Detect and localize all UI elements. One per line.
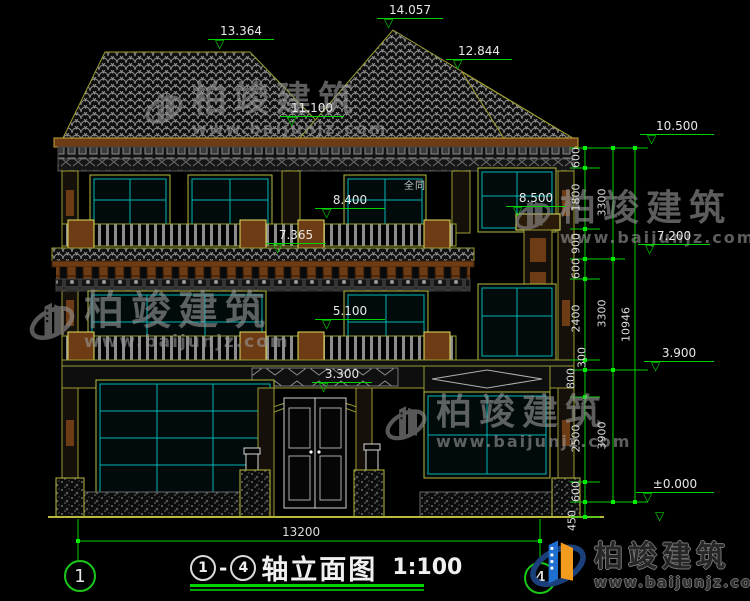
cad-elevation-drawing: 14.057 ▽ 13.364 ▽ 12.844 ▽ 11.100 ▽ 8.40… xyxy=(0,0,750,601)
dim-right-inner-2400: 2400 xyxy=(570,297,583,341)
elevation-triangle-icon: ▽ xyxy=(655,512,664,521)
elevation-mark-5100: 5.100 ▽ xyxy=(315,304,385,329)
dim-right-inner-2500: 2500 xyxy=(570,417,583,461)
dim-right-mid-3300a: 3300 xyxy=(596,181,609,225)
title-dash: - xyxy=(219,556,227,580)
elevation-triangle-icon: ▽ xyxy=(513,207,566,216)
elevation-mark-zero: ±0.000 ▽ xyxy=(636,477,714,502)
title-name: 轴立面图 xyxy=(261,548,377,587)
eave-cornice xyxy=(54,138,578,171)
brand-logo-url: www.baijunjz.com xyxy=(594,575,750,591)
brand-logo-icon xyxy=(528,532,588,592)
title-axis-end-circle: 4 xyxy=(230,555,256,581)
watermark-top: 柏竣建筑 www.baijunjz.com xyxy=(144,82,387,138)
axis-bubble-1: 1 xyxy=(64,560,96,592)
dim-right-inner-600: 600 xyxy=(570,136,583,180)
elevation-triangle-icon: ▽ xyxy=(645,245,710,254)
title-underline-thick xyxy=(190,584,424,587)
elevation-triangle-icon: ▽ xyxy=(322,209,385,218)
dim-right-mid-3300b: 3300 xyxy=(596,292,609,336)
elevation-triangle-icon: ▽ xyxy=(384,19,443,28)
dim-right-inner-600b: 600 xyxy=(570,247,583,291)
elevation-mark-roof-left: 13.364 ▽ xyxy=(208,24,274,49)
elevation-mark-roof-peak: 14.057 ▽ xyxy=(377,3,443,28)
elevation-triangle-icon: ▽ xyxy=(287,117,344,126)
elevation-mark-10500: 10.500 ▽ xyxy=(640,119,714,144)
elevation-triangle-icon: ▽ xyxy=(651,362,714,371)
watermark-url: www.baijunjz.com xyxy=(84,332,290,352)
elevation-mark-7200: 7.200 ▽ xyxy=(638,229,710,254)
elevation-triangle-icon: ▽ xyxy=(322,320,385,329)
title-scale: 1:100 xyxy=(392,555,462,580)
brand-logo-name: 柏竣建筑 xyxy=(594,533,750,575)
elevation-triangle-icon: ▽ xyxy=(453,60,512,69)
title-axis-start-circle: 1 xyxy=(190,555,216,581)
watermark-brand: 柏竣建筑 xyxy=(560,190,750,228)
dim-right-mid-3900: 3900 xyxy=(596,414,609,458)
watermark-brand: 柏竣建筑 xyxy=(84,290,290,332)
watermark-logo-icon xyxy=(144,82,184,132)
brand-logo: 柏竣建筑 www.baijunjz.com xyxy=(528,532,750,592)
elevation-triangle-icon: ▽ xyxy=(273,244,326,253)
watermark-center: 柏竣建筑 www.baijunjz.com xyxy=(384,394,631,451)
dim-right-inner-800: 800 xyxy=(565,357,578,401)
elevation-mark-8500: 8.500 ▽ xyxy=(506,191,566,216)
watermark-logo-icon xyxy=(384,394,428,450)
drawing-title: 1 - 4 轴立面图 1:100 xyxy=(190,548,462,587)
annotation-note: 全同 xyxy=(404,177,426,192)
dim-right-total-10946: 10946 xyxy=(620,299,633,351)
title-underline-thin xyxy=(190,589,424,591)
elevation-triangle-icon: ▽ xyxy=(319,383,372,392)
elevation-triangle-icon: ▽ xyxy=(643,493,714,502)
elevation-mark-roof-right: 12.844 ▽ xyxy=(446,44,512,69)
elevation-triangle-icon: ▽ xyxy=(215,40,274,49)
canopy-roof xyxy=(52,248,474,291)
third-floor-railing xyxy=(62,220,456,248)
dim-bottom-width: 13200 xyxy=(282,525,320,539)
elevation-mark-8400: 8.400 ▽ xyxy=(315,193,385,218)
elevation-mark-door: 3.300 ▽ xyxy=(312,367,372,392)
watermark-logo-icon xyxy=(28,290,76,350)
elevation-mark-3900: 3.900 ▽ xyxy=(644,346,714,371)
watermark-left: 柏竣建筑 www.baijunjz.com xyxy=(28,290,290,352)
elevation-mark-canopy: 7.365 ▽ xyxy=(266,228,326,253)
dim-right-inner-1800: 1800 xyxy=(570,176,583,220)
elevation-mark-eave: 11.100 ▽ xyxy=(280,101,344,126)
elevation-triangle-icon: ▽ xyxy=(647,135,714,144)
